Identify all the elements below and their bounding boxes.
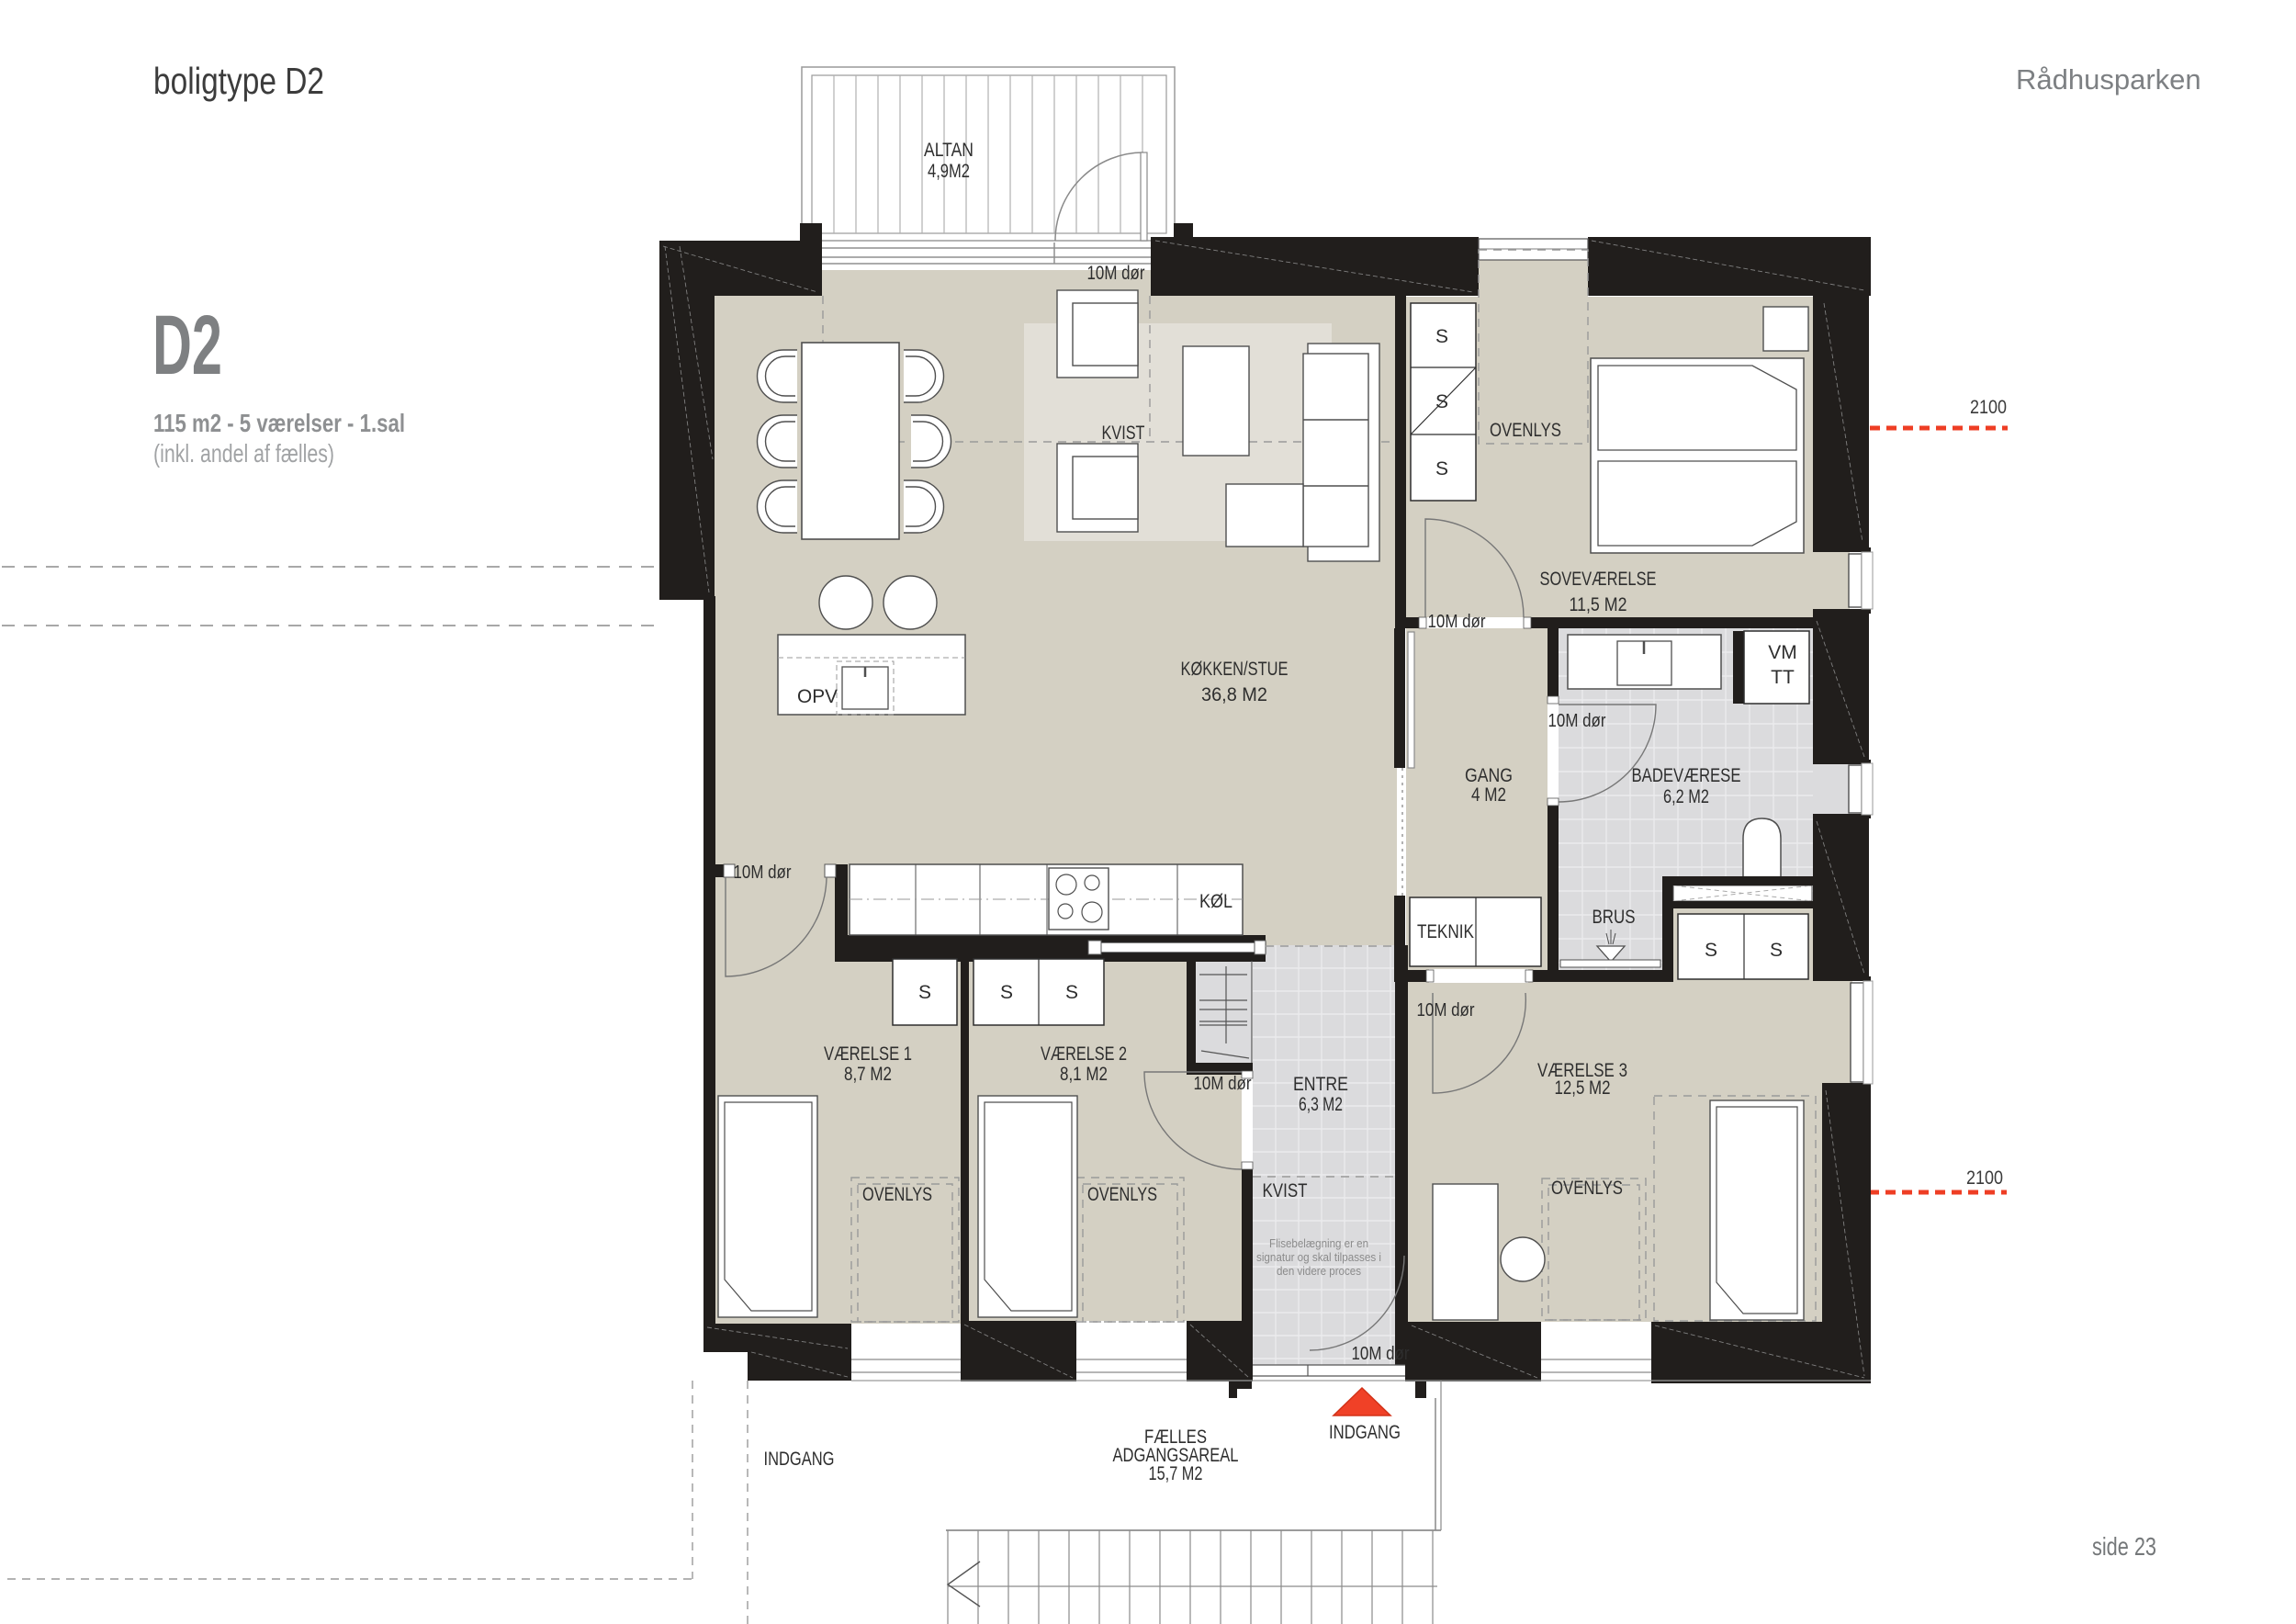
- svg-text:12,5 M2: 12,5 M2: [1555, 1077, 1611, 1099]
- svg-text:Rådhusparken: Rådhusparken: [2016, 63, 2201, 96]
- svg-text:15,7 M2: 15,7 M2: [1149, 1463, 1203, 1484]
- svg-text:10M dør: 10M dør: [1194, 1074, 1252, 1094]
- svg-text:TT: TT: [1771, 667, 1795, 688]
- svg-text:10M dør: 10M dør: [1352, 1344, 1410, 1364]
- svg-text:INDGANG: INDGANG: [1329, 1422, 1401, 1443]
- svg-text:S: S: [1435, 326, 1448, 347]
- svg-text:boligtype D2: boligtype D2: [153, 60, 324, 102]
- svg-text:2100: 2100: [1970, 397, 2007, 418]
- svg-text:11,5 M2: 11,5 M2: [1570, 594, 1627, 615]
- svg-text:8,7 M2: 8,7 M2: [844, 1064, 892, 1085]
- svg-text:10M dør: 10M dør: [734, 863, 792, 883]
- svg-text:10M dør: 10M dør: [1417, 1000, 1475, 1021]
- svg-text:OVENLYS: OVENLYS: [1087, 1184, 1157, 1205]
- svg-text:KVIST: KVIST: [1102, 423, 1145, 444]
- svg-text:OPV: OPV: [797, 686, 838, 707]
- svg-text:S: S: [918, 982, 931, 1003]
- svg-text:OVENLYS: OVENLYS: [1490, 420, 1561, 441]
- svg-text:OVENLYS: OVENLYS: [862, 1184, 932, 1205]
- svg-text:(inkl. andel af fælles): (inkl. andel af fælles): [153, 439, 334, 468]
- svg-text:VÆRELSE 1: VÆRELSE 1: [824, 1043, 912, 1065]
- svg-text:115 m2 - 5 værelser - 1.sal: 115 m2 - 5 værelser - 1.sal: [153, 409, 405, 437]
- svg-text:ENTRE: ENTRE: [1293, 1074, 1348, 1095]
- svg-text:KØKKEN/STUE: KØKKEN/STUE: [1181, 659, 1289, 680]
- svg-text:4,9M2: 4,9M2: [928, 161, 970, 182]
- svg-text:2100: 2100: [1966, 1167, 2003, 1189]
- svg-text:SOVEVÆRELSE: SOVEVÆRELSE: [1540, 569, 1657, 590]
- svg-text:36,8 M2: 36,8 M2: [1201, 684, 1267, 705]
- svg-text:signatur og skal tilpasses i: signatur og skal tilpasses i: [1256, 1250, 1381, 1264]
- svg-text:8,1 M2: 8,1 M2: [1060, 1064, 1108, 1085]
- svg-text:D2: D2: [152, 299, 222, 392]
- svg-text:GANG: GANG: [1465, 765, 1513, 786]
- svg-text:den videre proces: den videre proces: [1277, 1264, 1361, 1278]
- svg-text:OVENLYS: OVENLYS: [1551, 1178, 1623, 1199]
- svg-text:S: S: [1705, 940, 1717, 961]
- svg-text:4 M2: 4 M2: [1471, 784, 1506, 806]
- svg-text:6,2 M2: 6,2 M2: [1663, 786, 1709, 807]
- svg-text:INDGANG: INDGANG: [764, 1449, 835, 1470]
- svg-text:S: S: [1000, 982, 1013, 1003]
- svg-text:KØL: KØL: [1199, 891, 1232, 912]
- svg-text:10M dør: 10M dør: [1428, 612, 1486, 632]
- svg-text:Flisebelægning er en: Flisebelægning er en: [1269, 1236, 1368, 1250]
- svg-text:VM: VM: [1768, 642, 1797, 663]
- svg-text:ALTAN: ALTAN: [924, 140, 974, 161]
- svg-text:side 23: side 23: [2092, 1532, 2156, 1561]
- svg-text:S: S: [1065, 982, 1078, 1003]
- svg-text:S: S: [1435, 391, 1448, 412]
- svg-text:BADEVÆRESE: BADEVÆRESE: [1632, 765, 1741, 786]
- svg-text:KVIST: KVIST: [1263, 1180, 1308, 1201]
- svg-text:VÆRELSE 2: VÆRELSE 2: [1041, 1043, 1127, 1065]
- svg-text:S: S: [1435, 458, 1448, 479]
- svg-text:BRUS: BRUS: [1593, 907, 1636, 928]
- svg-text:6,3 M2: 6,3 M2: [1299, 1094, 1343, 1115]
- svg-text:S: S: [1770, 940, 1783, 961]
- svg-text:10M dør: 10M dør: [1087, 263, 1145, 284]
- svg-text:10M dør: 10M dør: [1548, 711, 1606, 731]
- svg-text:TEKNIK: TEKNIK: [1417, 921, 1474, 942]
